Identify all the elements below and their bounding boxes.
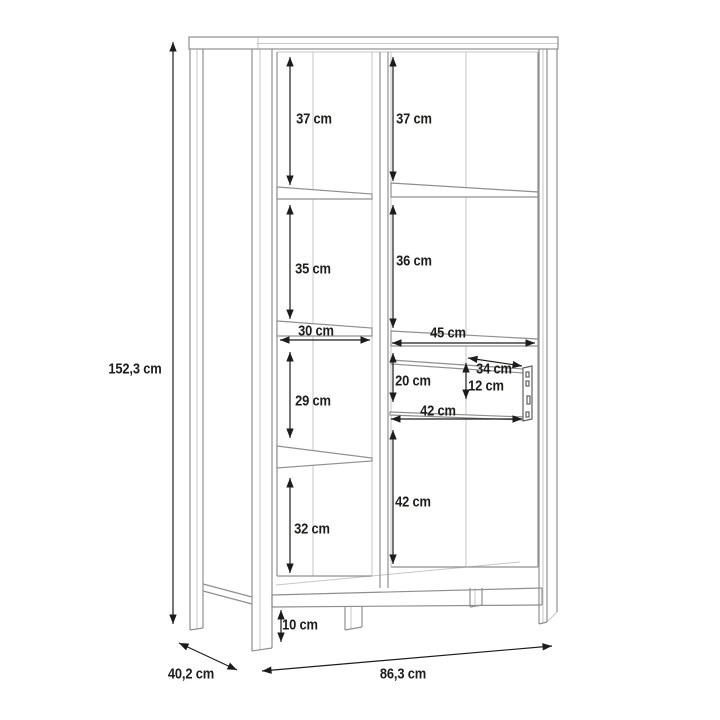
dim-label-left-second: 35 cm — [295, 262, 331, 277]
dim-label-left-third: 29 cm — [295, 394, 331, 409]
dim-label-leg-height: 10 cm — [282, 618, 318, 633]
dim-label-left-shelf-width: 30 cm — [298, 324, 334, 339]
dim-label-overall-height: 152,3 cm — [108, 362, 161, 377]
drawer-slide-panel — [523, 366, 532, 421]
middle-legs — [345, 588, 482, 630]
dim-label-drawer-height: 12 cm — [468, 379, 504, 394]
dim-label-right-shelf-width: 45 cm — [430, 326, 466, 341]
dim-label-left-bottom: 32 cm — [294, 522, 330, 537]
dim-label-overall-depth: 40,2 cm — [168, 667, 214, 682]
dimension-diagram-canvas: 152,3 cm 37 cm 37 cm 35 cm 36 cm 30 cm 4… — [0, 0, 720, 720]
dim-label-drawer-depth: 34 cm — [476, 362, 512, 377]
dim-label-right-bottom: 42 cm — [395, 495, 431, 510]
dim-label-drawer-width: 42 cm — [420, 404, 456, 419]
dim-label-right-second: 36 cm — [396, 254, 432, 269]
dim-label-left-top: 37 cm — [296, 112, 332, 127]
frame-posts — [190, 49, 557, 651]
cabinet-structure — [189, 37, 558, 651]
dim-label-overall-width: 86,3 cm — [380, 667, 426, 682]
dim-label-right-top: 37 cm — [396, 112, 432, 127]
dim-label-drawer-gap: 20 cm — [395, 374, 431, 389]
